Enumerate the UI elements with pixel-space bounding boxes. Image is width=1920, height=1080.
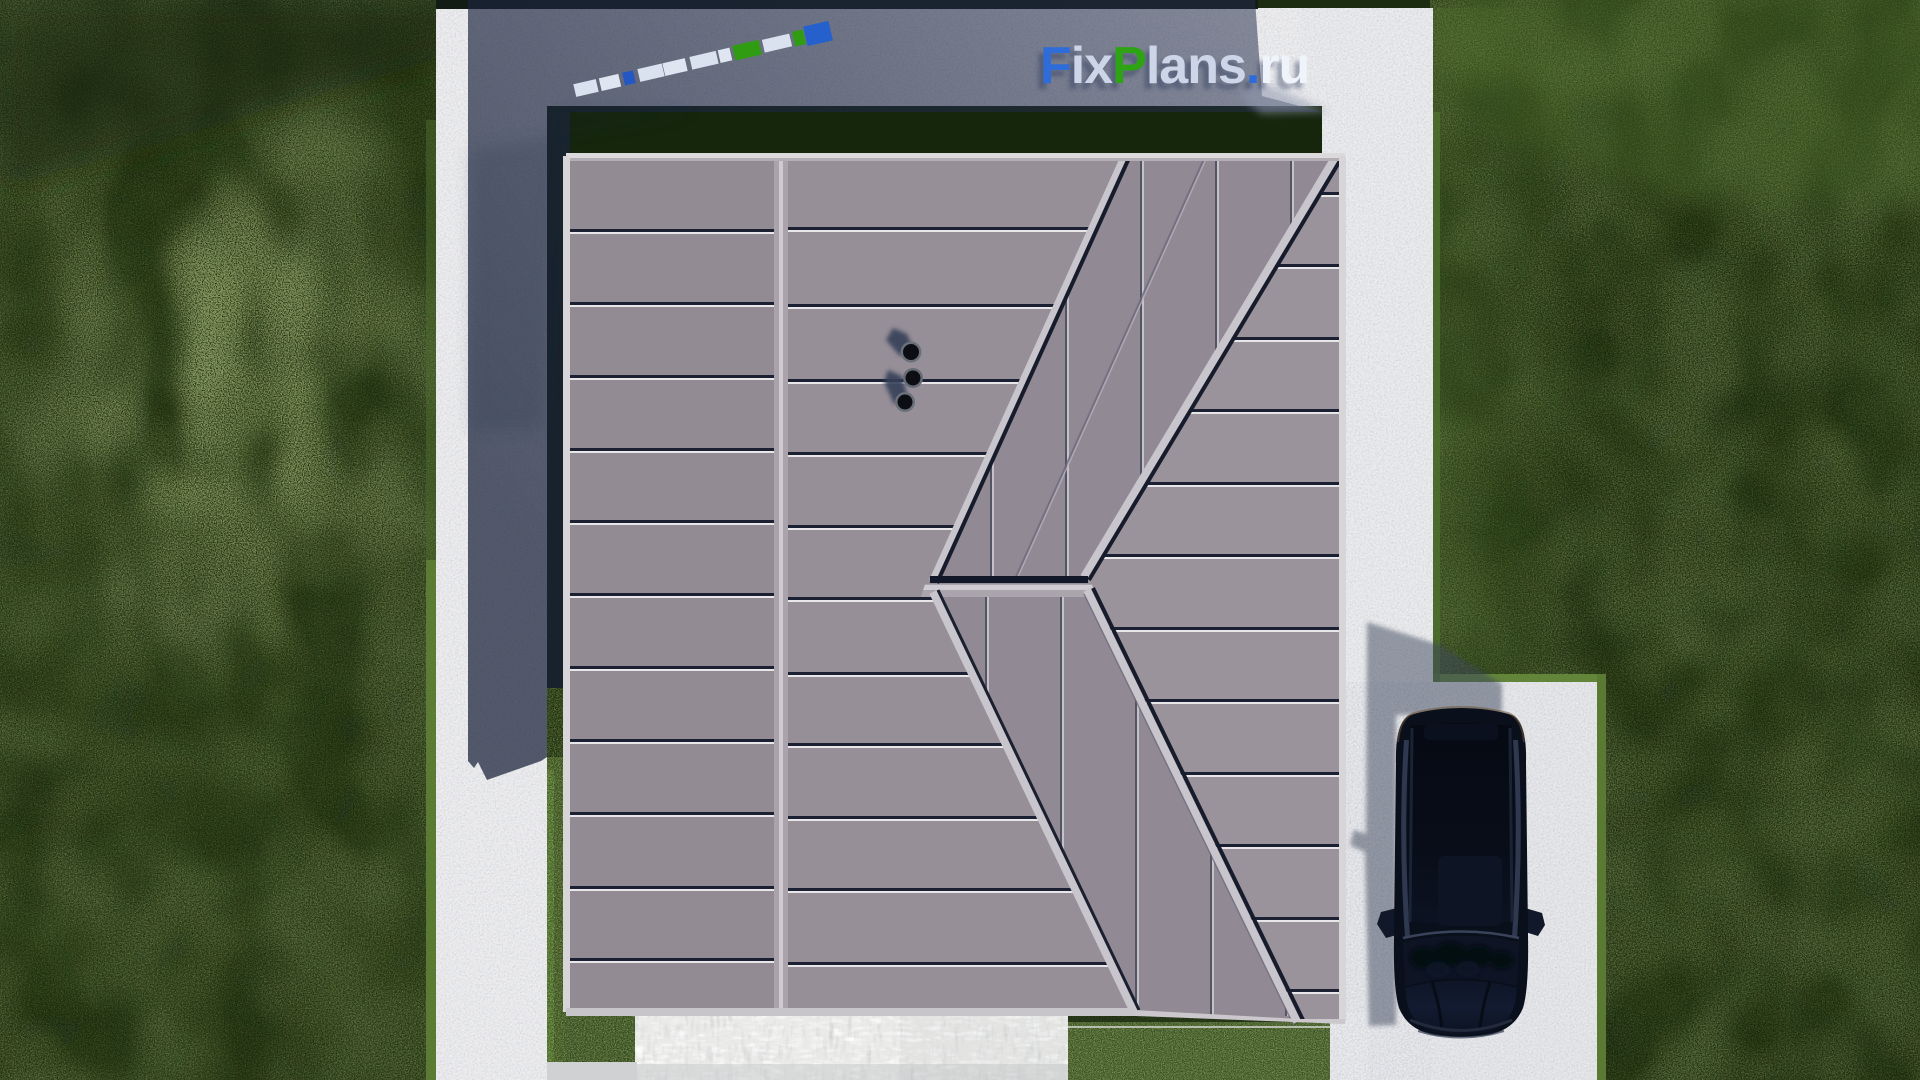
svg-text:FixPlans.ru: FixPlans.ru (1040, 37, 1309, 95)
